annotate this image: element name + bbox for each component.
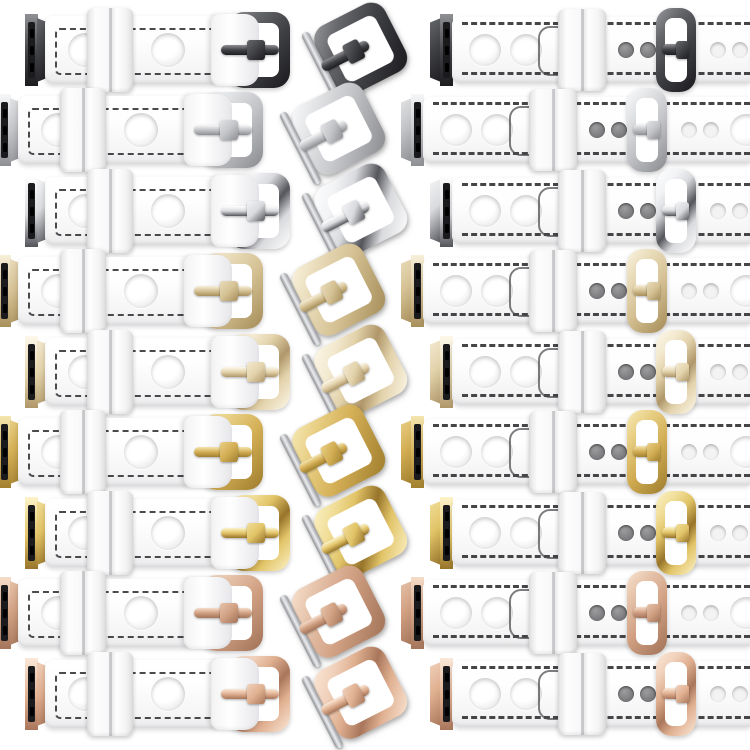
keeper-loop	[87, 491, 133, 575]
adapter-slot	[30, 529, 34, 538]
adjustment-hole	[611, 605, 627, 621]
adapter-slot	[30, 690, 34, 699]
adjustment-hole	[710, 686, 726, 702]
prong-sleeve	[220, 603, 238, 623]
adjustment-hole	[681, 283, 697, 299]
adapter-slot	[3, 431, 7, 440]
adapter-slot	[416, 431, 420, 440]
keeper-seam	[82, 571, 85, 655]
stitch-line-top	[433, 102, 750, 105]
adapter-slot-plate	[414, 102, 421, 158]
adjustment-hole	[640, 364, 656, 380]
adapter-slot	[445, 707, 449, 716]
keeper-seam	[552, 572, 555, 654]
adapter-slot	[3, 304, 7, 313]
short-strap-assembly	[0, 571, 268, 655]
prong-sleeve	[220, 281, 238, 301]
fastened-strap-assembly	[401, 88, 750, 172]
strap-big-hole	[124, 435, 158, 469]
adjustment-hole	[589, 122, 605, 138]
adapter-slot-plate	[1, 424, 8, 480]
adapter-slot	[416, 270, 420, 279]
adjustment-hole	[618, 686, 634, 702]
adapter-slot	[416, 448, 420, 457]
adjustment-hole	[681, 122, 697, 138]
adapter-slot	[416, 592, 420, 601]
stitch-line-top	[433, 424, 750, 427]
keeper-loop	[60, 88, 106, 172]
product-collage	[0, 0, 750, 750]
strap-big-hole	[469, 34, 501, 66]
short-strap-assembly	[0, 88, 268, 172]
adapter-slot	[30, 46, 34, 55]
adapter-slot-plate	[28, 183, 35, 239]
adjustment-hole	[618, 203, 634, 219]
adapter-slot	[416, 109, 420, 118]
adapter-slot	[416, 287, 420, 296]
prong-sleeve	[647, 282, 660, 300]
keeper-seam	[109, 330, 112, 414]
adapter-slot	[445, 46, 449, 55]
keeper-loop	[87, 169, 133, 253]
adjustment-hole	[703, 122, 719, 138]
strap-big-hole	[151, 677, 185, 711]
prong-sleeve	[676, 524, 689, 542]
keeper-loop	[87, 652, 133, 736]
keeper-loop	[529, 89, 577, 171]
keeper-loop	[529, 250, 577, 332]
adapter-slot	[3, 270, 7, 279]
prong-sleeve	[247, 523, 265, 543]
adjustment-hole	[640, 686, 656, 702]
adapter-slot-plate	[414, 263, 421, 319]
adjustment-hole	[589, 605, 605, 621]
adapter-slot	[416, 626, 420, 635]
adapter-slot	[30, 512, 34, 521]
adapter-slot	[416, 465, 420, 474]
strap-big-hole	[124, 596, 158, 630]
adapter-slot	[445, 529, 449, 538]
short-strap-assembly	[25, 652, 295, 736]
stitch-line-top	[462, 22, 750, 25]
strap-big-hole	[469, 517, 501, 549]
stitch-line-bottom	[462, 716, 750, 719]
adapter-slot-plate	[28, 22, 35, 78]
adapter-slot	[445, 368, 449, 377]
keeper-seam	[109, 8, 112, 92]
short-strap-assembly	[25, 330, 295, 414]
adapter-slot	[3, 126, 7, 135]
keeper-loop	[87, 330, 133, 414]
adjustment-hole	[640, 525, 656, 541]
adjustment-hole	[611, 283, 627, 299]
adapter-slot	[3, 626, 7, 635]
short-strap-assembly	[25, 491, 295, 575]
strap-big-hole	[440, 436, 472, 468]
stitch-line-top	[433, 263, 750, 266]
adapter-slot	[30, 207, 34, 216]
keeper-loop	[87, 8, 133, 92]
adjustment-hole	[710, 364, 726, 380]
adapter-slot	[445, 673, 449, 682]
adjustment-hole	[732, 686, 748, 702]
adapter-slot	[445, 385, 449, 394]
fastened-strap-assembly	[401, 249, 750, 333]
adjustment-hole	[732, 203, 748, 219]
keeper-seam	[82, 410, 85, 494]
keeper-seam	[82, 249, 85, 333]
strap-big-hole	[440, 275, 472, 307]
fastened-strap-assembly	[401, 571, 750, 655]
adapter-slot	[3, 448, 7, 457]
short-strap-assembly	[0, 410, 268, 494]
prong-sleeve	[676, 41, 689, 59]
short-strap-assembly	[25, 8, 295, 92]
stitch-line-top	[462, 505, 750, 508]
fastened-strap-assembly	[430, 652, 750, 736]
adapter-slot-plate	[1, 263, 8, 319]
adjustment-hole	[618, 525, 634, 541]
strap-big-hole	[151, 33, 185, 67]
stitch-line-bottom	[462, 555, 750, 558]
adapter-slot	[30, 673, 34, 682]
adjustment-hole	[710, 203, 726, 219]
adapter-slot	[416, 126, 420, 135]
keeper-seam	[581, 9, 584, 91]
adapter-slot	[30, 63, 34, 72]
adapter-slot	[3, 609, 7, 618]
adapter-slot-plate	[443, 183, 450, 239]
strap-big-hole	[469, 356, 501, 388]
adjustment-hole	[703, 444, 719, 460]
adapter-slot	[3, 465, 7, 474]
prong-sleeve	[647, 443, 660, 461]
strap-big-hole	[469, 195, 501, 227]
stitch-line-bottom	[433, 474, 750, 477]
adapter-slot	[445, 351, 449, 360]
adapter-slot	[30, 385, 34, 394]
short-strap-assembly	[25, 169, 295, 253]
adapter-slot-plate	[1, 102, 8, 158]
adapter-slot-plate	[443, 666, 450, 722]
stitch-line-top	[433, 585, 750, 588]
keeper-loop	[529, 411, 577, 493]
adapter-slot-plate	[28, 666, 35, 722]
adapter-slot-plate	[414, 585, 421, 641]
prong-sleeve	[247, 362, 265, 382]
prong-sleeve	[647, 604, 660, 622]
adjustment-hole	[589, 283, 605, 299]
fastened-strap-assembly	[430, 491, 750, 575]
adjustment-hole	[732, 42, 748, 58]
adjustment-hole	[710, 525, 726, 541]
fastened-strap-assembly	[430, 8, 750, 92]
adapter-slot	[30, 351, 34, 360]
adapter-slot	[3, 143, 7, 152]
adjustment-hole	[611, 122, 627, 138]
adjustment-hole	[681, 444, 697, 460]
prong-sleeve	[647, 121, 660, 139]
stitch-line-top	[462, 344, 750, 347]
strap-big-hole	[440, 597, 472, 629]
prong-sleeve	[676, 685, 689, 703]
adapter-slot	[30, 368, 34, 377]
adapter-slot-plate	[414, 424, 421, 480]
adjustment-hole	[640, 203, 656, 219]
adapter-slot-plate	[443, 344, 450, 400]
keeper-loop	[60, 410, 106, 494]
adapter-slot	[445, 224, 449, 233]
adapter-slot	[30, 190, 34, 199]
fastened-strap-assembly	[430, 330, 750, 414]
adapter-slot-plate	[443, 22, 450, 78]
adjustment-hole	[681, 605, 697, 621]
stitch-line-bottom	[462, 72, 750, 75]
prong-sleeve	[247, 201, 265, 221]
keeper-loop	[60, 571, 106, 655]
prong-sleeve	[247, 40, 265, 60]
keeper-loop	[558, 653, 606, 735]
adapter-slot	[445, 690, 449, 699]
keeper-seam	[109, 491, 112, 575]
adjustment-hole	[640, 42, 656, 58]
adapter-slot-plate	[28, 344, 35, 400]
adapter-slot	[30, 224, 34, 233]
keeper-seam	[581, 653, 584, 735]
stitch-line-bottom	[433, 152, 750, 155]
adjustment-hole	[618, 364, 634, 380]
keeper-loop	[60, 249, 106, 333]
prong-sleeve	[676, 363, 689, 381]
keeper-seam	[552, 250, 555, 332]
keeper-seam	[581, 331, 584, 413]
stitch-line-top	[462, 183, 750, 186]
keeper-seam	[581, 170, 584, 252]
adapter-slot	[416, 304, 420, 313]
prong-sleeve	[220, 120, 238, 140]
adapter-slot	[30, 29, 34, 38]
prong-sleeve	[247, 684, 265, 704]
keeper-seam	[109, 652, 112, 736]
adjustment-hole	[589, 444, 605, 460]
stitch-line-bottom	[433, 313, 750, 316]
adapter-slot	[445, 190, 449, 199]
adapter-slot	[3, 592, 7, 601]
fastened-strap-assembly	[430, 169, 750, 253]
stitch-line-bottom	[433, 635, 750, 638]
strap-big-hole	[124, 274, 158, 308]
prong-sleeve	[220, 442, 238, 462]
adapter-slot	[30, 546, 34, 555]
adapter-slot-plate	[28, 505, 35, 561]
keeper-seam	[581, 492, 584, 574]
adjustment-hole	[703, 283, 719, 299]
adjustment-hole	[703, 605, 719, 621]
stitch-line-bottom	[462, 233, 750, 236]
strap-big-hole	[469, 678, 501, 710]
keeper-seam	[109, 169, 112, 253]
short-strap-assembly	[0, 249, 268, 333]
adapter-slot	[445, 546, 449, 555]
strap-big-hole	[151, 194, 185, 228]
stitch-line-top	[462, 666, 750, 669]
keeper-seam	[552, 411, 555, 493]
strap-big-hole	[440, 114, 472, 146]
adapter-slot	[416, 143, 420, 152]
strap-big-hole	[151, 355, 185, 389]
adjustment-hole	[732, 364, 748, 380]
adapter-slot	[445, 63, 449, 72]
adapter-slot-plate	[443, 505, 450, 561]
fastened-strap-assembly	[401, 410, 750, 494]
stitch-line-bottom	[462, 394, 750, 397]
adapter-slot	[445, 207, 449, 216]
keeper-loop	[529, 572, 577, 654]
keeper-seam	[82, 88, 85, 172]
adapter-slot	[416, 609, 420, 618]
adjustment-hole	[732, 525, 748, 541]
prong-sleeve	[676, 202, 689, 220]
adjustment-hole	[618, 42, 634, 58]
adapter-slot	[30, 707, 34, 716]
adjustment-hole	[611, 444, 627, 460]
adjustment-hole	[710, 42, 726, 58]
strap-big-hole	[124, 113, 158, 147]
adapter-slot	[445, 512, 449, 521]
keeper-loop	[558, 492, 606, 574]
adapter-slot	[3, 109, 7, 118]
keeper-loop	[558, 9, 606, 91]
adapter-slot	[3, 287, 7, 296]
keeper-loop	[558, 170, 606, 252]
adapter-slot	[445, 29, 449, 38]
adapter-slot-plate	[1, 585, 8, 641]
strap-big-hole	[151, 516, 185, 550]
keeper-loop	[558, 331, 606, 413]
keeper-seam	[552, 89, 555, 171]
